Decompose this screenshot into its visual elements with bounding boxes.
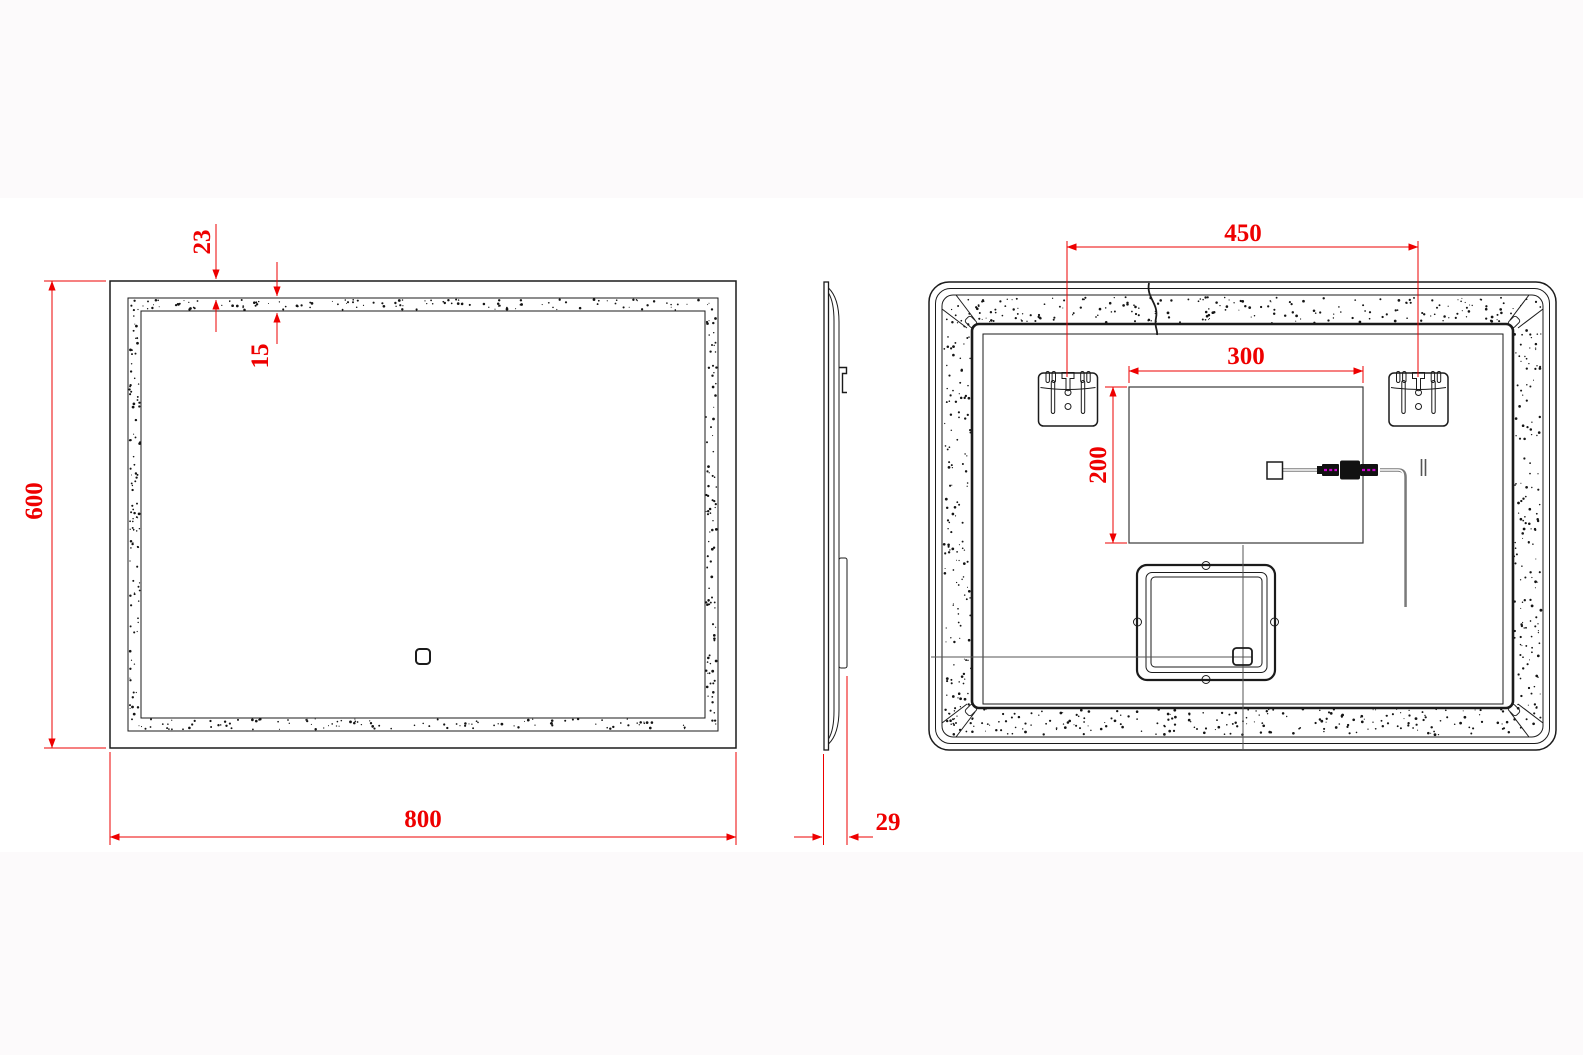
technical-drawing: 600 800 23 15 29 xyxy=(0,0,1583,1055)
dim-label-800: 800 xyxy=(404,806,442,833)
dim-label-600: 600 xyxy=(21,482,48,520)
drawing-canvas: 600 800 23 15 29 xyxy=(0,0,1583,1055)
dim-label-23: 23 xyxy=(189,230,216,255)
dim-label-15: 15 xyxy=(247,344,274,369)
dim-label-450: 450 xyxy=(1224,220,1262,247)
drawing-sheet xyxy=(0,198,1583,852)
dim-label-300: 300 xyxy=(1227,343,1265,370)
dim-label-200: 200 xyxy=(1085,446,1112,484)
dim-label-29: 29 xyxy=(876,809,901,836)
